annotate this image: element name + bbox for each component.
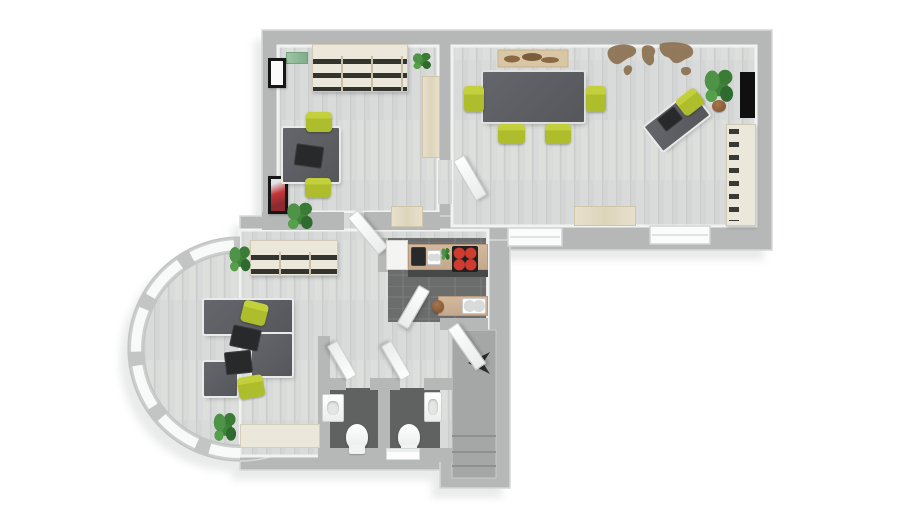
conference-door	[453, 155, 487, 201]
conference-sideboard	[574, 206, 636, 226]
office1-desk-monitor	[295, 144, 324, 167]
lounge-plant-bottom	[210, 408, 240, 446]
bath1-toilet	[346, 424, 368, 450]
office1-plant	[283, 198, 317, 234]
conference-plant-pot	[712, 100, 726, 112]
bath2-toilet	[398, 424, 420, 450]
kitchen-sink	[462, 298, 486, 314]
office1-door	[348, 210, 389, 255]
lounge-plant-top	[226, 242, 254, 276]
conference-art-red	[740, 72, 755, 118]
kitchen-jar	[432, 300, 444, 313]
bath1-sink	[322, 394, 344, 422]
conference-credenza	[726, 124, 756, 226]
hall-sideboard	[391, 206, 423, 227]
kitchen-stove	[452, 246, 478, 272]
office1-wall-plant-right	[410, 50, 434, 72]
furniture-layer	[0, 0, 900, 506]
bath2-door	[381, 340, 411, 381]
kitchen-door	[397, 285, 430, 330]
kitchen-coffee-machine	[412, 248, 425, 265]
lounge-sideboard-bottom	[240, 424, 320, 448]
kitchen-bowls	[427, 250, 441, 265]
kitchen-fridge	[386, 240, 408, 270]
conference-chair-left	[464, 86, 484, 112]
lounge-sideboard-top	[250, 240, 338, 276]
floorplan-stage	[0, 0, 900, 506]
office1-chair-bottom	[305, 178, 331, 198]
office1-wall-plant-left	[286, 52, 308, 64]
bath2-sink	[424, 392, 442, 422]
lounge-laptop2	[225, 351, 252, 374]
office1-chair-top	[306, 112, 332, 132]
conference-chair-bottom1	[498, 124, 525, 144]
stair-door	[447, 322, 486, 370]
office1-frame-top	[268, 58, 286, 88]
lounge-laptop1	[230, 325, 261, 350]
office1-cabinet	[422, 76, 440, 158]
bath1-door	[327, 340, 357, 381]
conference-chair-right	[586, 86, 606, 112]
lounge-chair-bottom	[236, 374, 265, 400]
conference-chair-bottom2	[545, 124, 571, 144]
conference-table	[483, 72, 584, 122]
office1-wall-shelf	[312, 44, 408, 92]
kitchen-herb-plant	[440, 246, 451, 262]
bath-bench	[386, 448, 420, 460]
